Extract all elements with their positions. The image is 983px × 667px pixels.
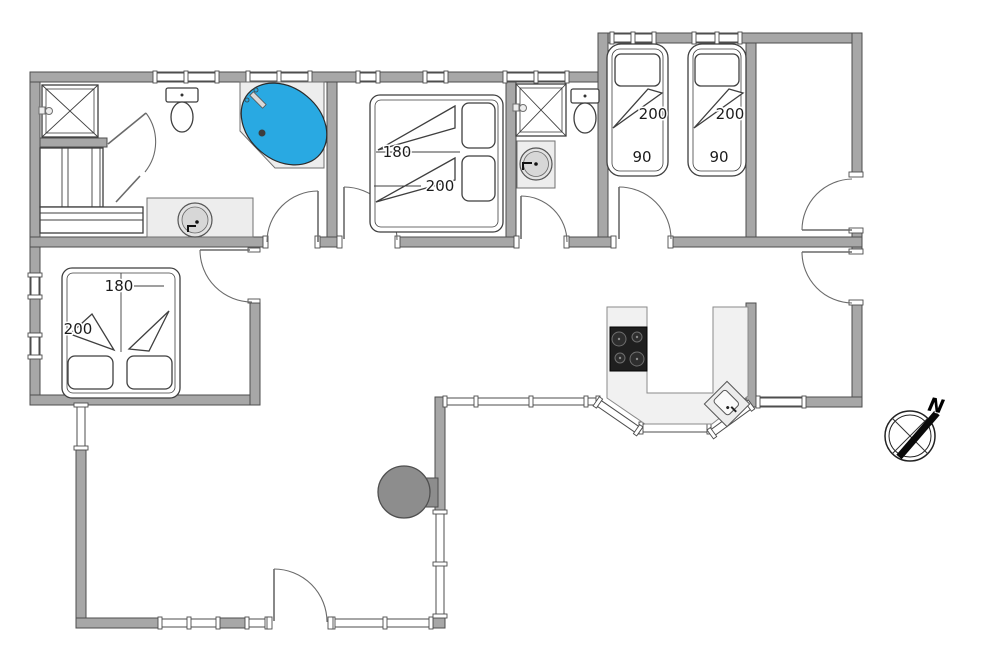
floor-plan-canvas: 180 200 180 200 200 90 200 90 N xyxy=(0,0,983,667)
door-twin-bedroom xyxy=(619,187,671,239)
window-terrace-west xyxy=(77,405,85,450)
shower-valve-2 xyxy=(513,104,519,111)
wall-corridor-4 xyxy=(567,237,614,247)
pillow xyxy=(68,356,113,389)
pillow xyxy=(615,54,660,86)
door-bathroom1 xyxy=(267,191,318,242)
shower-valve-1 xyxy=(39,107,45,114)
wall-corridor-3 xyxy=(397,237,518,247)
bathroom-2 xyxy=(513,84,599,188)
dim-single-bed1-length: 200 xyxy=(639,105,668,123)
wall-east-upper xyxy=(852,33,862,175)
wall-corridor-1 xyxy=(30,237,267,247)
door-annex xyxy=(802,179,852,230)
wall-sauna-stub xyxy=(40,138,107,147)
wall-south-corner xyxy=(433,618,445,628)
vanity-sink-1 xyxy=(147,198,253,237)
compass-north-label: N xyxy=(926,394,946,419)
wall-corridor-5 xyxy=(670,237,862,247)
dim-bed-sw-width: 180 xyxy=(105,277,134,295)
door-living-east xyxy=(802,252,852,303)
wall-east-lower xyxy=(852,303,862,407)
window-living-south-glass xyxy=(445,398,600,405)
window-bedroom3-2 xyxy=(31,335,39,357)
floor-plan-drawing: 180 200 180 200 200 90 200 90 N xyxy=(0,0,983,667)
wall-terrace-west xyxy=(76,450,86,628)
kitchen xyxy=(607,307,750,427)
window-bedroom3-1 xyxy=(31,275,39,297)
dim-bed-middle-length: 200 xyxy=(426,177,455,195)
dim-bed-sw-length: 200 xyxy=(64,320,93,338)
wall-annex-west xyxy=(746,43,756,237)
door-bathroom1-inner xyxy=(108,113,156,202)
wood-stove-body xyxy=(378,466,430,518)
washbasin-2 xyxy=(517,141,555,188)
wood-stove xyxy=(378,466,438,518)
wall-south-2 xyxy=(218,618,247,628)
pillow xyxy=(462,103,495,148)
wall-south-1 xyxy=(76,618,160,628)
door-south-entrance xyxy=(274,569,327,622)
dimension-labels: 180 200 180 200 200 90 200 90 N xyxy=(64,105,946,418)
pillow xyxy=(462,156,495,201)
compass-rose xyxy=(885,411,937,461)
door-bedroom3 xyxy=(200,250,252,302)
toilet-2 xyxy=(571,89,599,133)
window-north-4 xyxy=(425,73,446,81)
toilet-1 xyxy=(166,88,198,132)
window-kitchen-bay-south xyxy=(641,424,711,432)
window-north-3 xyxy=(358,73,378,81)
bedroom-middle-double-bed xyxy=(370,95,503,232)
window-south-2 xyxy=(247,619,267,627)
corner-spa-bathtub xyxy=(225,66,343,182)
wall-bath1-east xyxy=(327,82,337,237)
shower-2 xyxy=(513,84,566,136)
shower-1 xyxy=(39,85,98,137)
bathroom-1 xyxy=(39,66,343,237)
pillow xyxy=(695,54,739,86)
bathtub-drain xyxy=(259,130,266,137)
dim-single-bed1-width: 90 xyxy=(632,148,651,166)
wall-bedroom3-east xyxy=(250,303,260,405)
dim-bed-middle-width: 180 xyxy=(383,143,412,161)
pillow xyxy=(127,356,172,389)
window-south-east xyxy=(758,398,804,406)
door-bathroom2 xyxy=(521,196,567,242)
dim-single-bed2-length: 200 xyxy=(716,105,745,123)
dim-single-bed2-width: 90 xyxy=(709,148,728,166)
